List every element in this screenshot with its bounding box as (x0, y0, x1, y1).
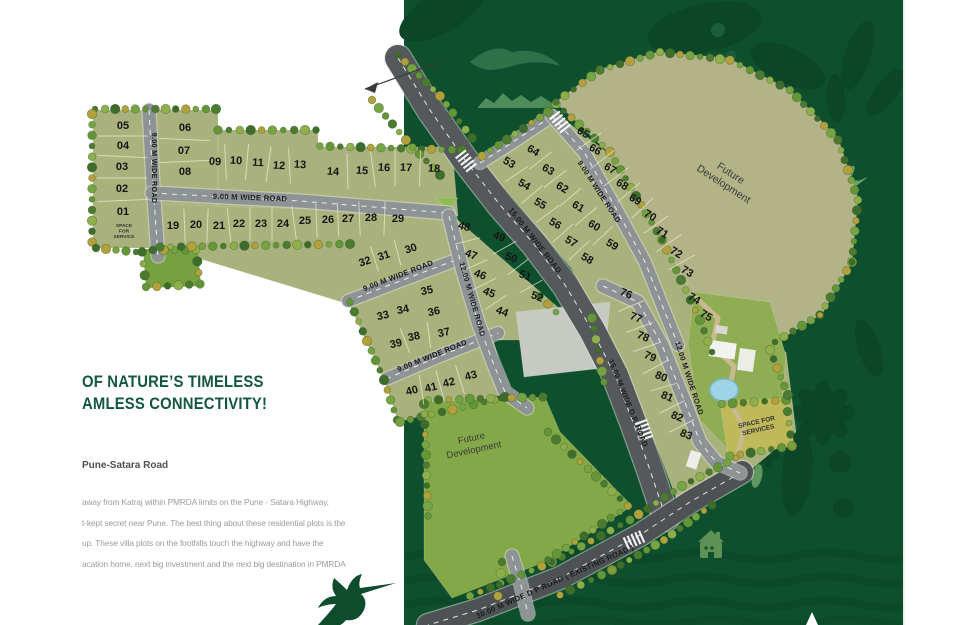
tree-icon (290, 126, 298, 134)
tree-icon (496, 581, 503, 588)
tree-icon (560, 91, 569, 100)
tree-icon (140, 271, 150, 281)
tree-icon (677, 481, 687, 491)
tree-icon (446, 397, 452, 403)
tree-icon (142, 283, 150, 291)
tree-icon (561, 108, 567, 114)
tree-icon (226, 127, 232, 133)
plot-number: 37 (437, 326, 451, 340)
tree-icon (580, 532, 589, 541)
tree-icon (607, 64, 613, 70)
road-label: 9.00 M WIDE ROAD (150, 133, 159, 204)
tree-icon (388, 145, 394, 151)
plot-number: 16 (378, 162, 391, 175)
tree-icon (624, 502, 632, 510)
tree-icon (601, 480, 608, 487)
tree-icon (854, 196, 862, 204)
tree-icon (88, 184, 97, 193)
plot-number: 33 (376, 309, 390, 323)
tree-icon (790, 328, 797, 335)
tree-icon (577, 542, 586, 551)
plot-number: 24 (277, 218, 290, 230)
tree-icon (313, 127, 320, 134)
tree-icon (187, 242, 197, 252)
tree-icon (783, 390, 793, 400)
tree-icon (777, 443, 786, 452)
plot-number: 22 (233, 218, 245, 230)
tree-icon (537, 562, 546, 571)
tree-icon (138, 248, 147, 257)
tree-icon (609, 567, 616, 574)
tree-icon (668, 530, 677, 539)
tree-icon (494, 592, 503, 601)
tree-icon (651, 540, 661, 550)
tree-icon (529, 394, 536, 401)
tree-icon (374, 103, 384, 113)
tree-icon (395, 417, 405, 427)
decoration (829, 451, 851, 473)
tree-icon (750, 398, 759, 407)
plot-number: 08 (179, 166, 191, 178)
tree-icon (634, 551, 643, 560)
tree-icon (498, 558, 506, 566)
tree-icon (423, 462, 430, 469)
tree-icon (92, 244, 100, 252)
decoration (833, 498, 853, 518)
tree-icon (466, 592, 474, 600)
tree-icon (789, 443, 796, 450)
tree-icon (551, 435, 561, 445)
tree-icon (423, 501, 433, 511)
tree-icon (424, 483, 430, 489)
tree-icon (596, 531, 606, 541)
tree-icon (356, 319, 362, 325)
tree-icon (110, 104, 120, 114)
tree-icon (591, 325, 598, 332)
tree-icon (596, 66, 605, 75)
tree-icon (726, 56, 735, 65)
clubhouse-building (715, 325, 728, 335)
tree-icon (429, 412, 435, 418)
tree-icon (646, 51, 655, 60)
tree-icon (89, 228, 96, 235)
plot-number: 04 (117, 140, 130, 152)
tree-icon (849, 259, 856, 266)
tree-icon (577, 459, 583, 465)
tree-icon (101, 105, 109, 113)
tree-icon (660, 536, 668, 544)
tree-icon (683, 518, 693, 528)
tree-icon (156, 243, 165, 252)
tree-icon (89, 121, 96, 128)
tree-icon (519, 124, 528, 133)
tree-icon (653, 500, 659, 506)
tree-icon (425, 513, 432, 520)
tree-icon (122, 106, 129, 113)
tree-icon (195, 269, 202, 276)
tree-icon (220, 243, 226, 249)
tree-icon (246, 125, 256, 135)
tree-icon (626, 516, 635, 525)
tree-icon (517, 571, 525, 579)
tree-icon (595, 347, 601, 353)
tree-icon (423, 492, 431, 500)
tree-icon (767, 77, 774, 84)
plot-number: 11 (252, 157, 264, 170)
tree-icon (660, 493, 669, 502)
tree-icon (780, 332, 789, 341)
tree-icon (677, 51, 684, 58)
tree-icon (590, 527, 597, 534)
tree-icon (336, 240, 344, 248)
tree-icon (566, 585, 576, 595)
panel-edge-shadow (903, 0, 905, 625)
tree-icon (746, 66, 754, 74)
tree-icon (783, 407, 792, 416)
tree-icon (768, 446, 774, 452)
plot-number: 18 (428, 163, 441, 176)
tree-icon (851, 227, 860, 236)
plot-number: 28 (365, 212, 377, 224)
plot-number: 26 (322, 214, 334, 226)
tree-icon (337, 144, 343, 150)
tree-icon (771, 397, 779, 405)
swimming-pool (710, 379, 738, 401)
tree-icon (395, 52, 401, 58)
tree-icon (214, 126, 223, 135)
tree-icon (597, 571, 606, 580)
tree-icon (439, 146, 445, 152)
tree-icon (557, 592, 564, 599)
tree-icon (617, 509, 623, 515)
tree-icon (787, 431, 795, 439)
tree-icon (382, 113, 389, 120)
tree-icon (416, 72, 423, 79)
plot-number: 19 (167, 220, 179, 232)
tree-icon (197, 281, 203, 287)
tree-icon (733, 455, 739, 461)
tree-icon (185, 281, 193, 289)
tree-icon (371, 356, 380, 365)
plot-number: 23 (255, 218, 267, 230)
tree-icon (422, 471, 431, 480)
tree-icon (814, 116, 820, 122)
tree-icon (577, 581, 585, 589)
tree-icon (345, 239, 355, 249)
plot-number: 21 (213, 220, 225, 232)
tree-icon (356, 142, 366, 152)
tree-icon (379, 375, 389, 385)
tree-icon (579, 79, 587, 87)
tree-icon (709, 349, 715, 355)
tree-icon (817, 312, 823, 318)
tree-icon (477, 395, 484, 402)
tree-icon (849, 248, 857, 256)
tree-icon (572, 539, 578, 545)
tree-icon (258, 127, 265, 134)
tree-icon (643, 547, 650, 554)
tree-icon (851, 238, 857, 244)
plot-number: 38 (407, 330, 421, 344)
tree-icon (536, 114, 544, 122)
tree-icon (715, 54, 725, 64)
tree-icon (368, 96, 376, 104)
tree-icon (236, 126, 244, 134)
right-margin (903, 0, 957, 625)
tree-icon (677, 525, 684, 532)
tree-icon (422, 432, 428, 438)
tree-icon (772, 339, 778, 345)
tree-icon (807, 317, 815, 325)
plot-number: 12 (273, 160, 286, 173)
tree-icon (656, 48, 664, 56)
tree-icon (122, 247, 131, 256)
tree-icon (561, 443, 568, 450)
tree-icon (728, 399, 738, 409)
tree-icon (448, 108, 457, 117)
tree-icon (643, 505, 651, 513)
tree-icon (326, 241, 332, 247)
plot-number: 14 (327, 166, 341, 179)
plot-number: 29 (392, 213, 404, 225)
tree-icon (539, 393, 548, 402)
tree-icon (765, 345, 775, 355)
tree-icon (292, 240, 302, 250)
tree-icon (273, 242, 279, 248)
tree-icon (496, 569, 506, 579)
tree-icon (713, 463, 723, 473)
tree-icon (174, 280, 184, 290)
tree-icon (568, 114, 576, 122)
tree-icon (544, 300, 553, 309)
tree-icon (838, 277, 844, 283)
tree-icon (268, 126, 277, 135)
plot-number: 13 (294, 159, 307, 172)
tree-icon (409, 144, 416, 151)
tree-icon (87, 216, 97, 226)
tree-icon (462, 126, 470, 134)
tree-icon (326, 142, 335, 151)
tree-icon (317, 143, 324, 150)
tree-icon (820, 122, 828, 130)
tree-icon (797, 321, 807, 331)
tree-icon (834, 136, 843, 145)
tree-icon (181, 105, 190, 114)
tree-icon (407, 416, 414, 423)
site-plan-map: 9.00 M WIDE ROAD9.00 M WIDE ROAD9.00 M W… (0, 0, 957, 625)
tree-icon (770, 356, 777, 363)
tree-icon (506, 574, 516, 584)
tree-icon (746, 448, 756, 458)
tree-icon (568, 450, 577, 459)
tree-icon (708, 501, 717, 510)
tree-icon (377, 143, 386, 152)
plot-number: 35 (420, 284, 434, 298)
tree-icon (152, 282, 161, 291)
decoration (711, 23, 725, 37)
plot-number: 06 (179, 122, 191, 134)
tree-icon (300, 125, 310, 135)
tree-icon (634, 510, 644, 520)
tree-icon (477, 589, 483, 595)
tree-icon (608, 487, 617, 496)
tree-icon (826, 293, 836, 303)
tree-icon (755, 70, 765, 80)
tree-icon (792, 92, 802, 102)
tree-icon (314, 240, 323, 249)
tree-icon (435, 91, 445, 101)
tree-icon (529, 568, 535, 574)
tree-icon (800, 101, 807, 108)
tree-icon (592, 335, 601, 344)
tree-icon (562, 544, 570, 552)
tree-icon (552, 549, 562, 559)
tree-icon (87, 109, 97, 119)
tree-icon (781, 382, 789, 390)
tree-icon (422, 78, 431, 87)
plot-number: 09 (209, 156, 222, 169)
plot-number: 01 (117, 206, 129, 218)
tree-icon (359, 327, 367, 335)
tree-icon (786, 86, 794, 94)
tree-icon (193, 106, 199, 112)
tree-icon (843, 165, 853, 175)
tree-icon (427, 145, 436, 154)
tree-icon (826, 128, 836, 138)
tree-icon (448, 146, 456, 154)
tree-icon (692, 513, 700, 521)
tree-icon (607, 527, 615, 535)
tree-icon (202, 105, 210, 113)
tree-icon (778, 374, 784, 380)
tree-icon (696, 472, 705, 481)
tree-icon (430, 86, 436, 92)
tree-icon (456, 118, 462, 124)
tree-icon (773, 364, 782, 373)
tree-icon (467, 133, 477, 143)
tree-icon (588, 577, 594, 583)
tree-icon (776, 81, 785, 90)
tree-icon (142, 106, 148, 112)
tree-icon (415, 150, 424, 159)
plot-number: 02 (116, 183, 128, 195)
tree-icon (701, 508, 707, 514)
tree-icon (545, 557, 552, 564)
tree-icon (347, 299, 354, 306)
plot-number: 27 (342, 213, 354, 225)
tree-icon (544, 428, 552, 436)
tree-icon (368, 347, 375, 354)
plot-number: 07 (178, 145, 190, 157)
tree-icon (434, 395, 443, 404)
tree-icon (350, 307, 359, 316)
tree-icon (391, 407, 397, 413)
tree-icon (386, 396, 395, 405)
tree-icon (601, 379, 608, 386)
tree-icon (168, 244, 174, 250)
tree-icon (701, 327, 708, 334)
tree-icon (448, 405, 458, 415)
tree-icon (240, 241, 250, 251)
tree-icon (625, 56, 635, 66)
tree-icon (396, 129, 402, 135)
tree-icon (841, 156, 849, 164)
tree-icon (486, 583, 495, 592)
tree-icon (832, 285, 840, 293)
tree-icon (140, 260, 147, 267)
tree-icon (692, 307, 698, 313)
tree-icon (230, 242, 238, 250)
tree-icon (421, 411, 428, 418)
tree-icon (605, 147, 615, 157)
tree-icon (822, 303, 829, 310)
tree-icon (757, 447, 765, 455)
tree-icon (517, 393, 527, 403)
tree-icon (304, 241, 311, 248)
tree-icon (377, 367, 383, 373)
tree-icon (597, 367, 607, 377)
tree-icon (682, 287, 689, 294)
tree-icon (113, 247, 120, 254)
tree-icon (397, 144, 405, 152)
tree-icon (486, 394, 495, 403)
tree-icon (498, 395, 504, 401)
tree-icon (686, 51, 695, 60)
tree-icon (88, 153, 96, 161)
tree-icon (617, 561, 625, 569)
tree-icon (87, 163, 97, 173)
tree-icon (597, 519, 607, 529)
tree-icon (588, 538, 595, 545)
tree-icon (762, 398, 768, 404)
plot-number: 17 (400, 162, 413, 175)
tree-icon (208, 242, 217, 251)
plot-number: 10 (230, 155, 243, 168)
tree-icon (401, 58, 409, 66)
tree-icon (495, 141, 503, 149)
flower-icon (791, 381, 855, 445)
tree-icon (199, 243, 206, 250)
tree-icon (626, 557, 632, 563)
tree-icon (401, 135, 411, 145)
tree-icon (688, 478, 694, 484)
tree-icon (584, 465, 592, 473)
tree-icon (607, 514, 615, 522)
tree-icon (786, 420, 792, 426)
tree-icon (438, 408, 446, 416)
tree-icon (737, 62, 743, 68)
tree-icon (852, 206, 862, 216)
tree-icon (586, 72, 596, 82)
tree-icon (723, 459, 731, 467)
tree-icon (571, 86, 577, 92)
tree-icon (362, 336, 372, 346)
tree-icon (131, 105, 140, 114)
tree-icon (347, 143, 355, 151)
tree-icon (89, 196, 95, 202)
tree-icon (252, 242, 259, 249)
page: 9.00 M WIDE ROAD9.00 M WIDE ROAD9.00 M W… (0, 0, 957, 625)
tree-icon (637, 55, 644, 62)
tree-icon (706, 469, 713, 476)
tree-icon (443, 101, 450, 108)
plot-number: 20 (190, 219, 202, 231)
plot-number: 39 (389, 337, 403, 351)
tree-icon (421, 450, 431, 460)
tree-icon (587, 313, 597, 323)
plot-number: 25 (299, 215, 311, 227)
tree-icon (665, 48, 675, 58)
